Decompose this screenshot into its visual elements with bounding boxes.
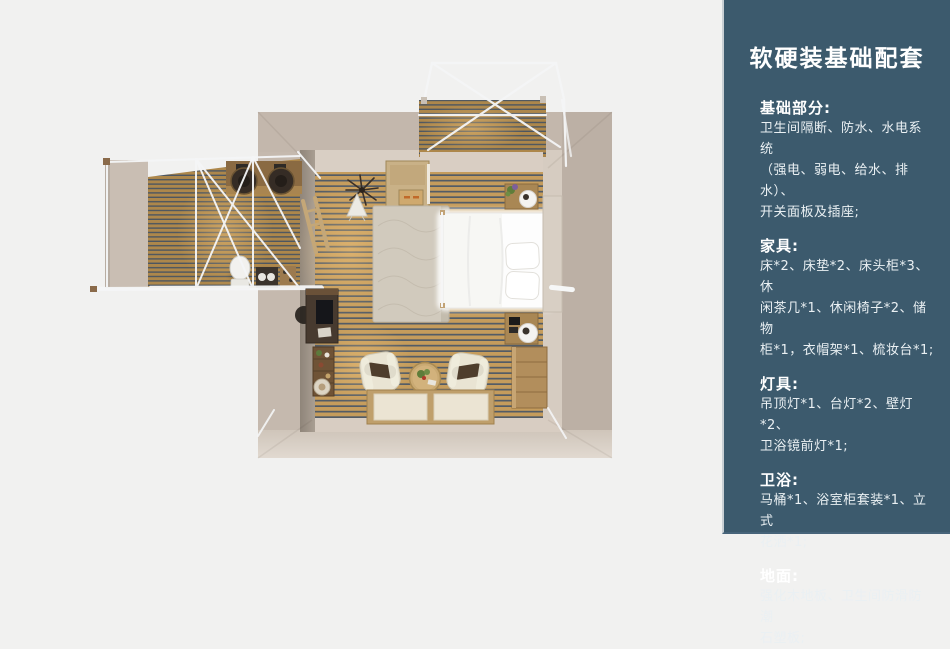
balcony-deck xyxy=(419,100,546,172)
porch-deck xyxy=(105,160,148,288)
bed xyxy=(437,209,559,311)
section-furniture: 家具: 床*2、床垫*2、床头柜*3、休 闲茶几*1、休闲椅子*2、储物 柜*1… xyxy=(760,236,934,361)
section-flooring: 地面: 强化木地板、卫生间防滑防潮 石塑板; xyxy=(760,566,934,649)
armchair-right xyxy=(445,351,491,396)
section-basics-body: 卫生间隔断、防水、水电系统 （强电、弱电、给水、排水）、 开关面板及插座; xyxy=(760,118,934,223)
laptop xyxy=(316,300,333,324)
section-basics-heading: 基础部分: xyxy=(760,98,934,118)
info-panel: 软硬装基础配套 基础部分: 卫生间隔断、防水、水电系统 （强电、弱电、给水、排水… xyxy=(722,0,950,534)
section-bathroom-body: 马桶*1、浴室柜套装*1、立式 花洒*1; xyxy=(760,490,934,553)
armchair-left xyxy=(358,350,402,395)
section-flooring-body: 强化木地板、卫生间防滑防潮 石塑板; xyxy=(760,586,934,649)
slide: 软硬装基础配套 基础部分: 卫生间隔断、防水、水电系统 （强电、弱电、给水、排水… xyxy=(0,0,950,534)
section-bathroom: 卫浴: 马桶*1、浴室柜套装*1、立式 花洒*1; xyxy=(760,470,934,553)
section-basics: 基础部分: 卫生间隔断、防水、水电系统 （强电、弱电、给水、排水）、 开关面板及… xyxy=(760,98,934,223)
section-furniture-body: 床*2、床垫*2、床头柜*3、休 闲茶几*1、休闲椅子*2、储物 柜*1，衣帽架… xyxy=(760,256,934,361)
floor-mats xyxy=(367,390,494,424)
panel-title: 软硬装基础配套 xyxy=(724,44,950,74)
wardrobe xyxy=(386,161,430,206)
section-lighting: 灯具: 吊顶灯*1、台灯*2、壁灯*2、 卫浴镜前灯*1; xyxy=(760,374,934,457)
section-furniture-heading: 家具: xyxy=(760,236,934,256)
section-lighting-body: 吊顶灯*1、台灯*2、壁灯*2、 卫浴镜前灯*1; xyxy=(760,394,934,457)
ladder-shelf xyxy=(313,347,334,396)
coffee-table xyxy=(410,363,441,394)
section-lighting-heading: 灯具: xyxy=(760,374,934,394)
section-flooring-heading: 地面: xyxy=(760,566,934,586)
dresser xyxy=(512,347,547,408)
nightstand-bottom xyxy=(505,313,538,344)
nightstand-top xyxy=(505,184,538,209)
floor-plan-render xyxy=(0,0,722,534)
bathroom-extension xyxy=(90,152,328,292)
section-bathroom-heading: 卫浴: xyxy=(760,470,934,490)
